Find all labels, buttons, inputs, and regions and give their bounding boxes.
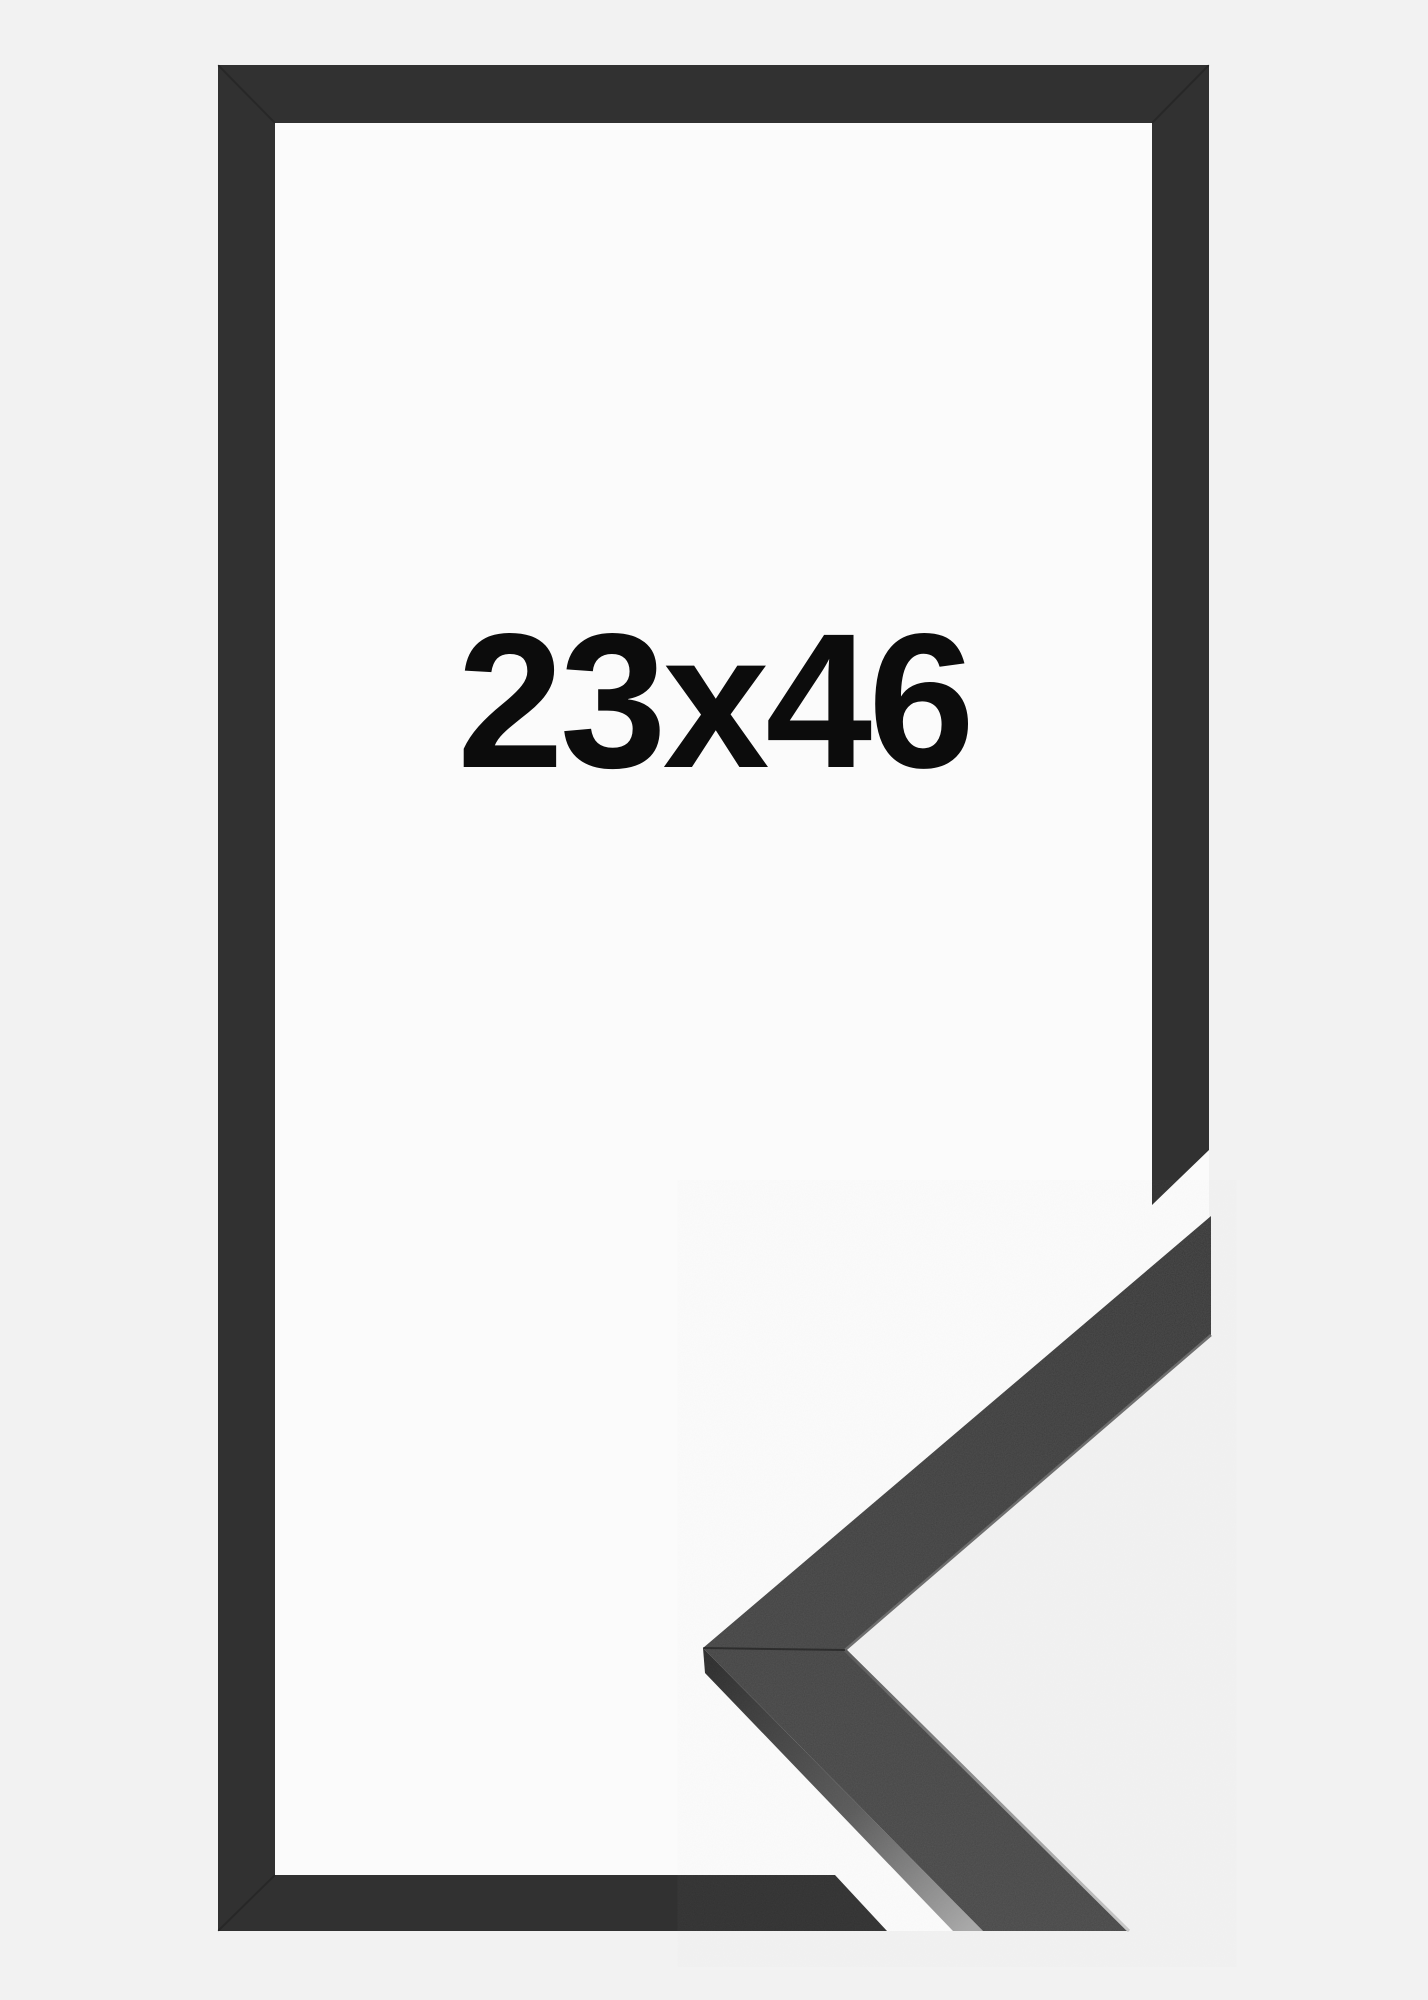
product-image-stage: 23x46 (0, 0, 1428, 2000)
frame-size-label: 23x46 (457, 593, 971, 808)
frame-product-image: 23x46 (0, 0, 1428, 2000)
